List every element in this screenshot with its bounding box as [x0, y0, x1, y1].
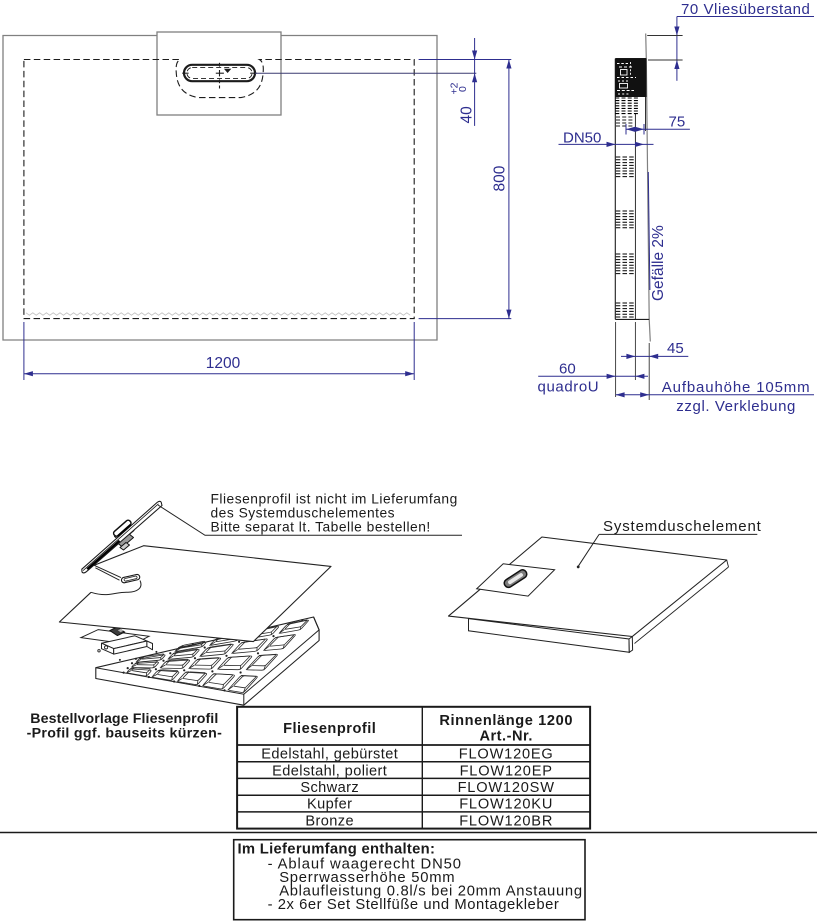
svg-text:FLOW120BR: FLOW120BR	[459, 813, 553, 829]
svg-text:Gefälle 2%: Gefälle 2%	[650, 225, 667, 301]
svg-text:Fliesenprofil: Fliesenprofil	[283, 721, 376, 737]
svg-text:Kupfer: Kupfer	[307, 797, 352, 813]
svg-text:60: 60	[559, 361, 576, 378]
svg-text:Fliesenprofil ist nicht im Lie: Fliesenprofil ist nicht im Lieferumfang	[211, 492, 458, 507]
svg-text:Systemduschelement: Systemduschelement	[603, 518, 762, 535]
svg-text:Schwarz: Schwarz	[300, 780, 359, 796]
svg-text:FLOW120EG: FLOW120EG	[459, 747, 554, 763]
svg-text:zzgl. Verklebung: zzgl. Verklebung	[676, 398, 796, 415]
svg-text:des Systemduschelementes: des Systemduschelementes	[211, 506, 396, 521]
svg-text:quadroU: quadroU	[538, 379, 600, 396]
svg-text:FLOW120EP: FLOW120EP	[460, 763, 553, 779]
svg-text:45: 45	[667, 340, 684, 357]
svg-text:0: 0	[457, 86, 469, 92]
svg-text:FLOW120SW: FLOW120SW	[458, 780, 555, 796]
svg-text:800: 800	[492, 165, 509, 191]
svg-text:70 Vliesüberstand: 70 Vliesüberstand	[681, 1, 810, 18]
svg-text:Aufbauhöhe 105mm: Aufbauhöhe 105mm	[662, 379, 811, 396]
svg-text:40: 40	[459, 106, 476, 124]
svg-text:Edelstahl, poliert: Edelstahl, poliert	[272, 763, 387, 779]
svg-text:- 2x 6er Set Stellfüße und Mon: - 2x 6er Set Stellfüße und Montagekleber	[268, 897, 560, 913]
svg-text:-Profil ggf. bauseits kürzen-: -Profil ggf. bauseits kürzen-	[27, 726, 223, 742]
svg-text:75: 75	[669, 113, 686, 130]
svg-text:FLOW120KU: FLOW120KU	[459, 797, 553, 813]
svg-text:Edelstahl, gebürstet: Edelstahl, gebürstet	[261, 747, 398, 763]
svg-text:Art.-Nr.: Art.-Nr.	[479, 729, 532, 745]
svg-text:Bronze: Bronze	[305, 813, 354, 829]
svg-text:Im Lieferumfang enthalten:: Im Lieferumfang enthalten:	[238, 842, 436, 858]
svg-text:1200: 1200	[206, 355, 241, 372]
svg-text:Rinnenlänge 1200: Rinnenlänge 1200	[439, 713, 573, 729]
svg-text:Bitte separat lt. Tabelle best: Bitte separat lt. Tabelle bestellen!	[211, 520, 431, 535]
